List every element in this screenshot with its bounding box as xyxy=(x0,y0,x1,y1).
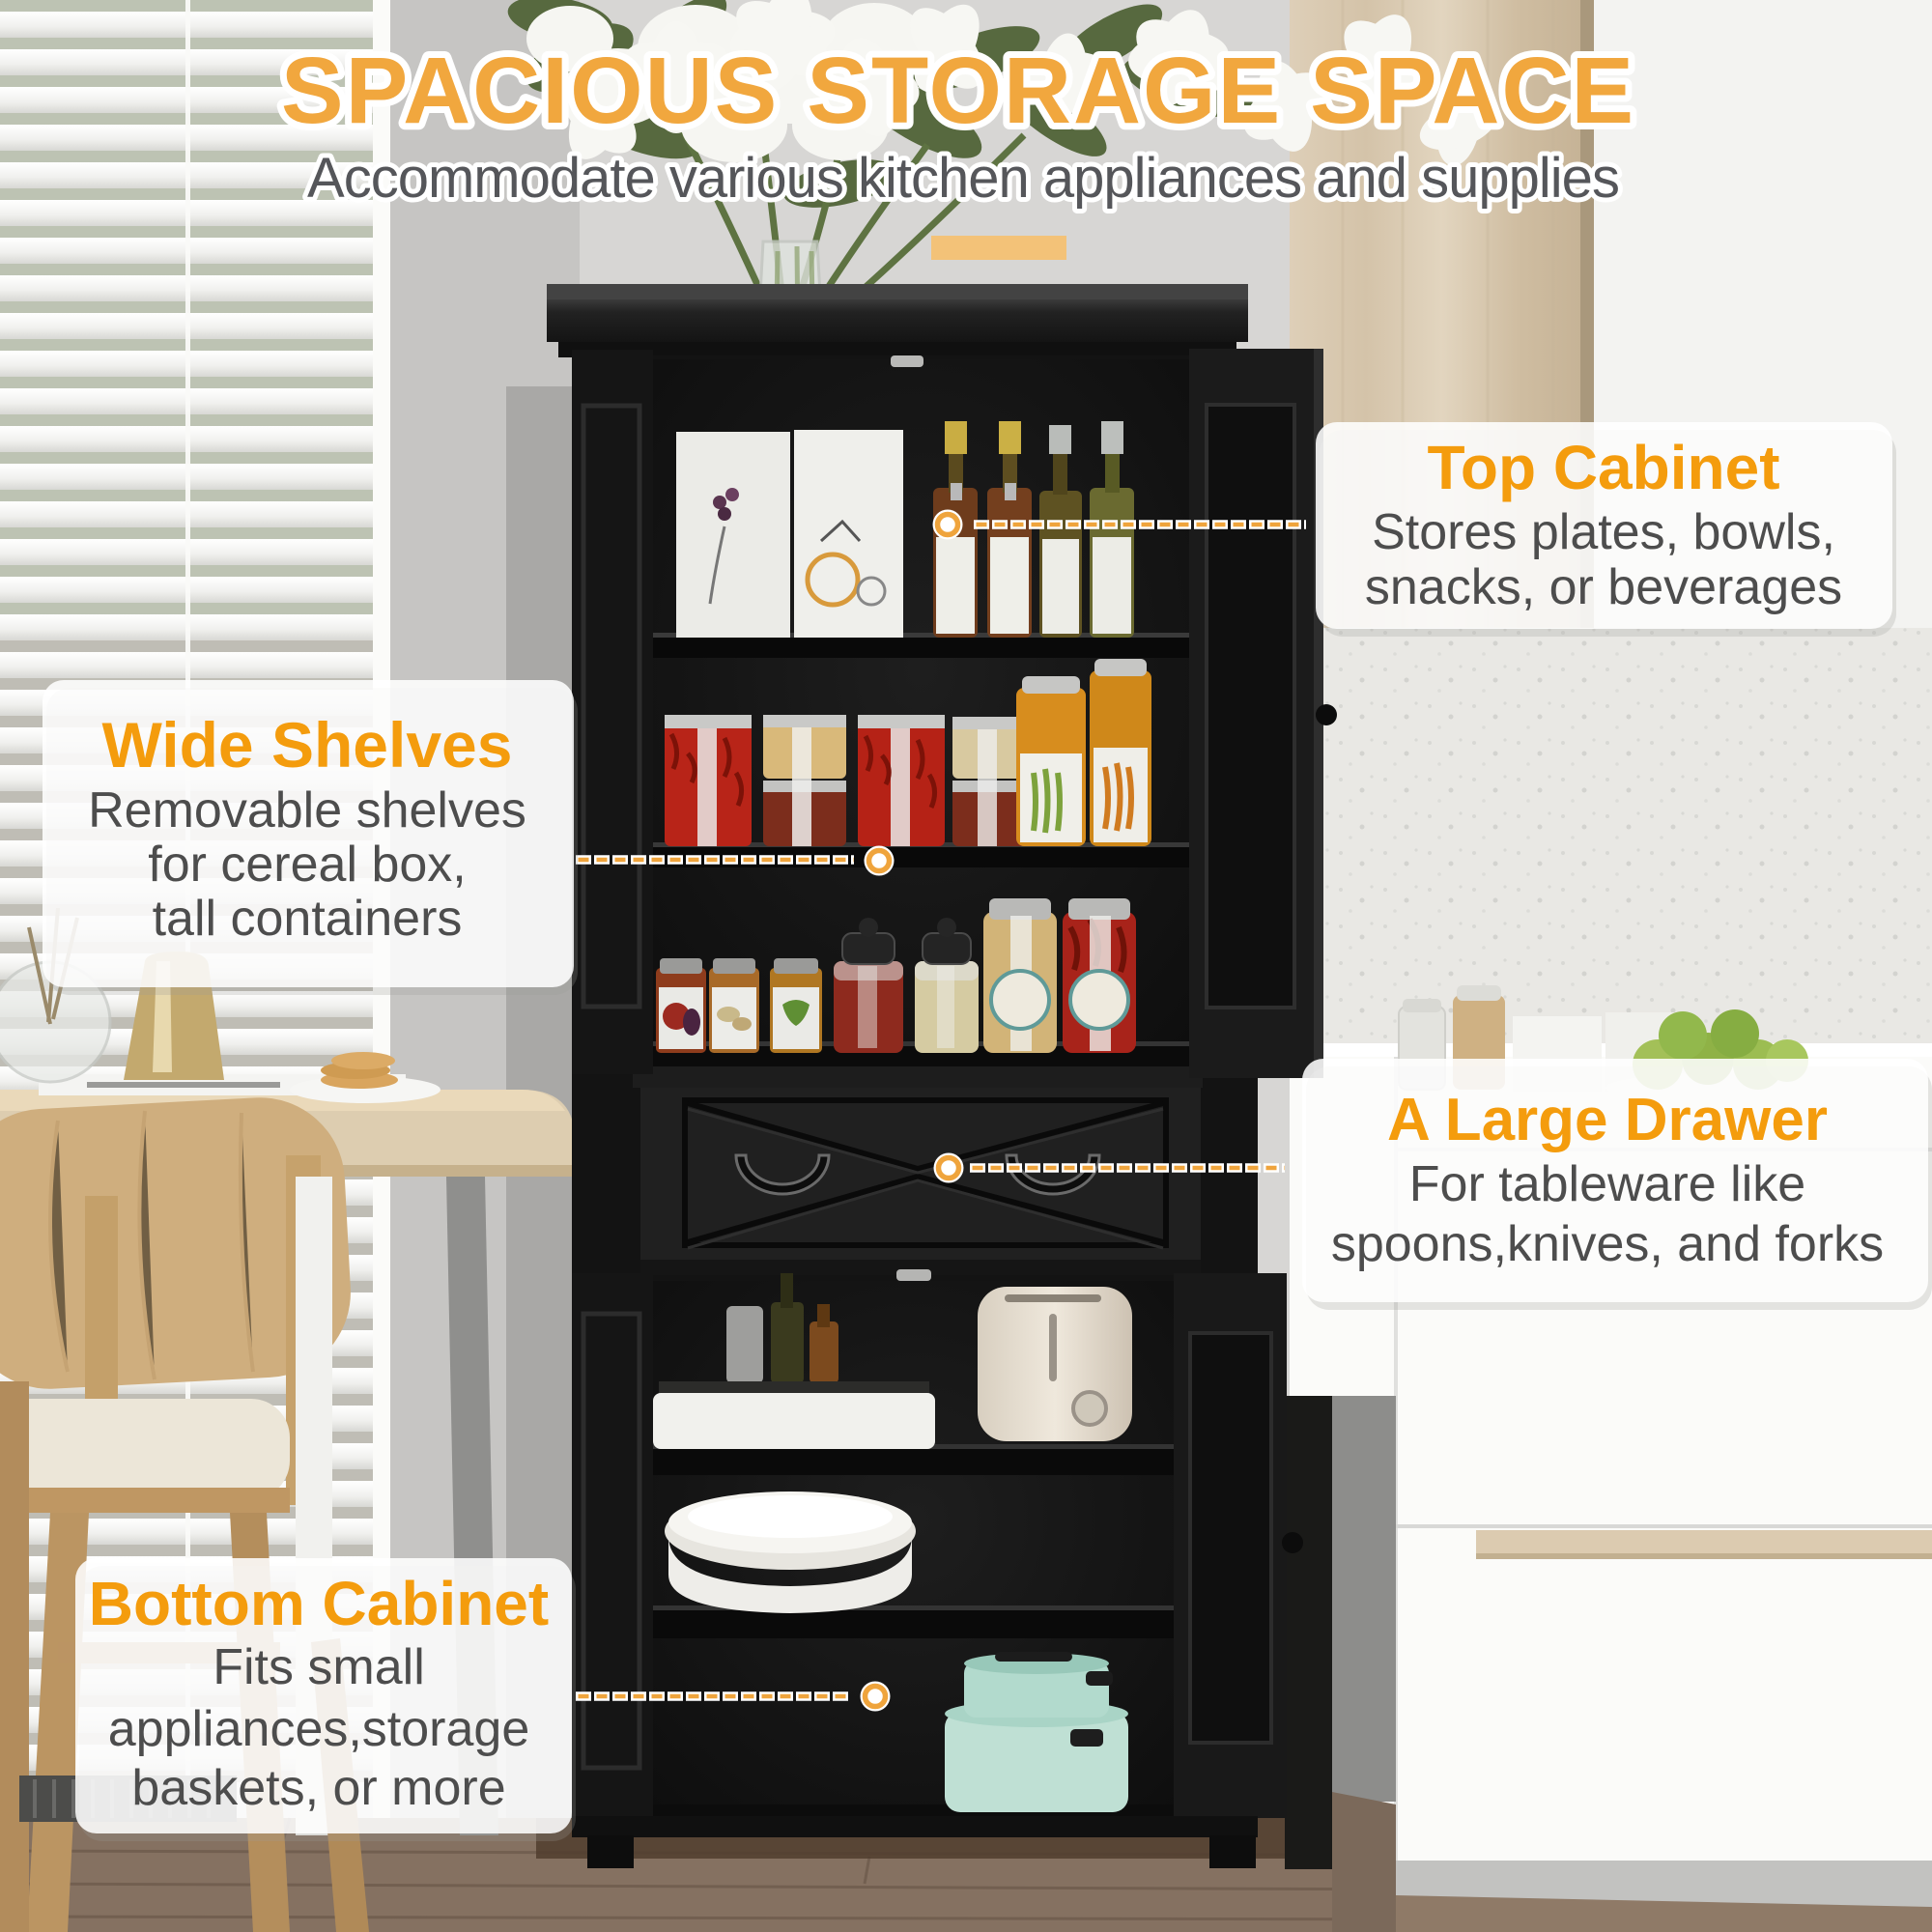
svg-text:baskets, or more: baskets, or more xyxy=(131,1760,505,1816)
svg-text:for cereal box,: for cereal box, xyxy=(148,837,467,893)
svg-text:spoons,knives, and forks: spoons,knives, and forks xyxy=(1331,1216,1884,1272)
svg-text:Bottom Cabinet: Bottom Cabinet xyxy=(89,1569,549,1638)
svg-text:Removable shelves: Removable shelves xyxy=(88,782,526,838)
svg-text:Wide Shelves: Wide Shelves xyxy=(102,709,513,781)
svg-text:A Large Drawer: A Large Drawer xyxy=(1387,1087,1828,1153)
svg-text:snacks, or beverages: snacks, or beverages xyxy=(1365,559,1842,615)
svg-text:tall containers: tall containers xyxy=(153,891,463,947)
svg-text:Fits small: Fits small xyxy=(213,1639,425,1695)
svg-text:Accommodate various kitchen ap: Accommodate various kitchen appliances a… xyxy=(307,147,1619,210)
svg-text:Stores plates, bowls,: Stores plates, bowls, xyxy=(1372,504,1835,560)
svg-text:appliances,storage: appliances,storage xyxy=(108,1701,530,1757)
svg-text:SPACIOUS STORAGE SPACE: SPACIOUS STORAGE SPACE xyxy=(281,38,1635,143)
svg-text:For tableware like: For tableware like xyxy=(1409,1156,1805,1212)
svg-text:Top Cabinet: Top Cabinet xyxy=(1428,433,1780,502)
